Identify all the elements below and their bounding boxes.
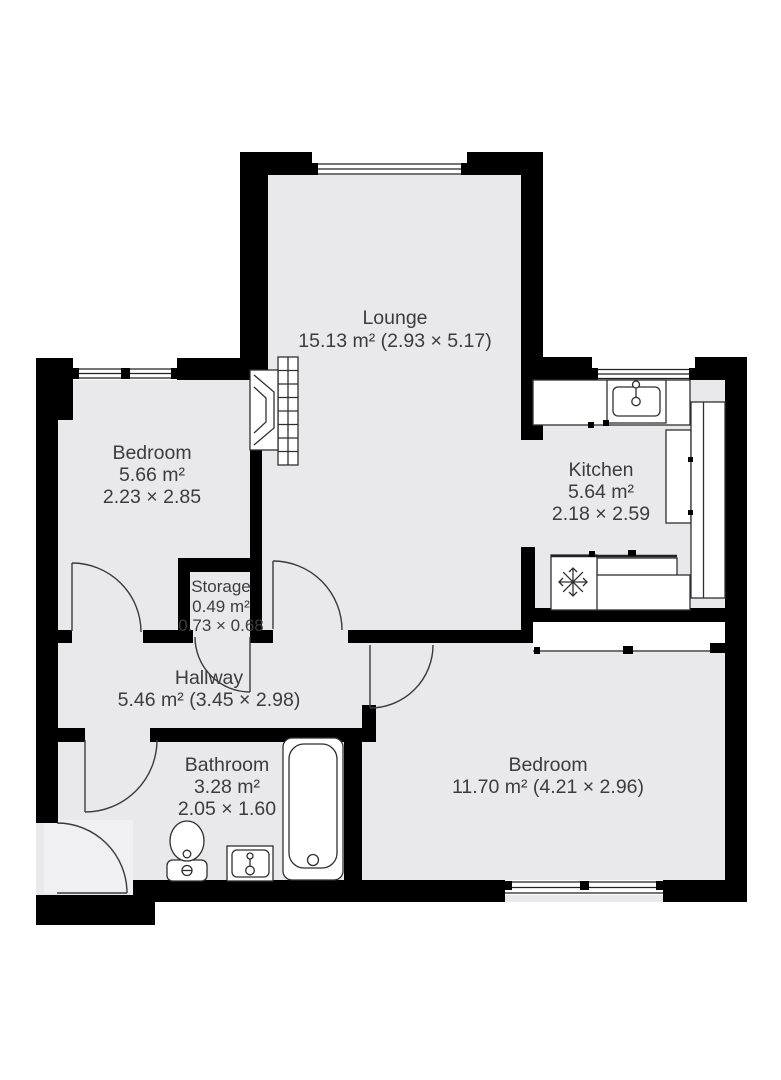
window-mullion-mark: [171, 368, 177, 379]
label-bathroom-name: Bathroom: [185, 754, 270, 776]
window-mullion-mark: [73, 368, 79, 379]
window-bedroom-top-left: [73, 358, 177, 380]
bathtub-icon: [283, 738, 343, 880]
freezer-snowflake-icon: [551, 555, 597, 610]
kitchen-counter-right-narrow: [666, 430, 691, 523]
label-kitchen-area: 5.64 m²: [568, 481, 635, 503]
label-kitchen-dims: 2.18 × 2.59: [552, 503, 650, 525]
wall-hallway-top-stub: [58, 630, 72, 643]
sink-tap-head: [246, 866, 255, 875]
kitchen-counter-bottom-upper: [597, 558, 677, 577]
counter-mark: [603, 420, 609, 426]
wall-bottom-entrance-block: [36, 895, 155, 925]
kitchen-sink-icon: [607, 380, 666, 423]
fireplace-icon: [250, 357, 298, 465]
kitchen-counter-right-tall: [691, 402, 725, 598]
wall-right-outer: [725, 357, 747, 902]
window-glass: [592, 357, 695, 380]
wall-bedroom2-door-stub: [362, 705, 376, 742]
wall-kitchen-connector: [521, 622, 533, 643]
toilet-drain: [183, 850, 191, 858]
label-storage-name: Storage: [191, 577, 251, 596]
wall-lounge-top-left: [240, 152, 312, 175]
bathtub-drain: [308, 855, 319, 866]
label-storage-dims: 0.73 × 0.68: [178, 616, 264, 635]
wall-kitchen-top-left: [522, 357, 592, 380]
wall-lounge-left: [240, 175, 268, 380]
label-bathroom-dims: 2.05 × 1.60: [178, 798, 276, 820]
label-hallway-name: Hallway: [175, 667, 244, 689]
label-bedroom2-name: Bedroom: [508, 754, 587, 776]
sink-tap: [633, 381, 640, 388]
label-bedroom1-name: Bedroom: [112, 442, 191, 464]
label-storage-area: 0.49 m²: [192, 597, 250, 616]
counter-mark: [688, 457, 693, 462]
sink-tap-head: [632, 397, 640, 405]
label-bedroom1-area: 5.66 m²: [119, 464, 186, 486]
window-band-bedroom-top: [533, 622, 725, 654]
window-mullion-mark: [689, 368, 695, 380]
counter-mark: [688, 510, 693, 515]
window-mullion-mark: [623, 646, 633, 654]
wall-bedroom1-top: [177, 358, 250, 380]
window-lounge: [312, 152, 467, 175]
window-mullion-mark: [461, 163, 467, 175]
bathtub-inner: [289, 744, 337, 868]
window-bedroom-bottom-right: [505, 880, 663, 895]
sink-tap: [247, 853, 253, 859]
label-hallway-area: 5.46 m² (3.45 × 2.98): [118, 689, 301, 711]
window-mullion-mark: [656, 881, 663, 890]
wall-bathroom-bedroom-divider: [344, 728, 362, 880]
wall-kitchen-top-right: [695, 357, 747, 380]
wall-bathroom-top-stub: [58, 728, 85, 742]
window-mullion-mark: [580, 881, 589, 890]
toilet-icon: [167, 821, 207, 881]
wall-band-end: [710, 643, 725, 653]
floorplan-canvas: Lounge 15.13 m² (2.93 × 5.17) Bedroom 5.…: [0, 0, 781, 1080]
wall-left-outer: [36, 380, 58, 823]
window-mullion-mark: [312, 163, 318, 175]
wall-storage-top: [178, 558, 262, 572]
counter-mark: [588, 422, 594, 428]
window-kitchen: [592, 357, 695, 380]
window-mullion-mark: [534, 647, 540, 654]
wall-bottom-right: [663, 880, 747, 902]
label-lounge-area: 15.13 m² (2.93 × 5.17): [298, 330, 492, 352]
window-mullion-mark: [592, 368, 598, 380]
bathroom-sink-icon: [227, 846, 273, 881]
label-bedroom1-dims: 2.23 × 2.85: [103, 486, 201, 508]
wall-bottom-left: [133, 880, 505, 902]
kitchen-counter-bottom-lower: [593, 575, 690, 610]
floorplan-svg: Lounge 15.13 m² (2.93 × 5.17) Bedroom 5.…: [0, 0, 781, 1080]
counter-mark: [589, 551, 595, 557]
window-mullion-mark: [505, 881, 512, 890]
label-kitchen-name: Kitchen: [568, 459, 633, 481]
label-bathroom-area: 3.28 m²: [194, 776, 261, 798]
label-lounge-name: Lounge: [362, 307, 427, 329]
wall-hallway-top-c: [348, 630, 533, 643]
counter-mark: [628, 550, 636, 556]
label-bedroom2-area: 11.70 m² (4.21 × 2.96): [452, 776, 644, 798]
window-mullion-mark: [121, 368, 130, 379]
